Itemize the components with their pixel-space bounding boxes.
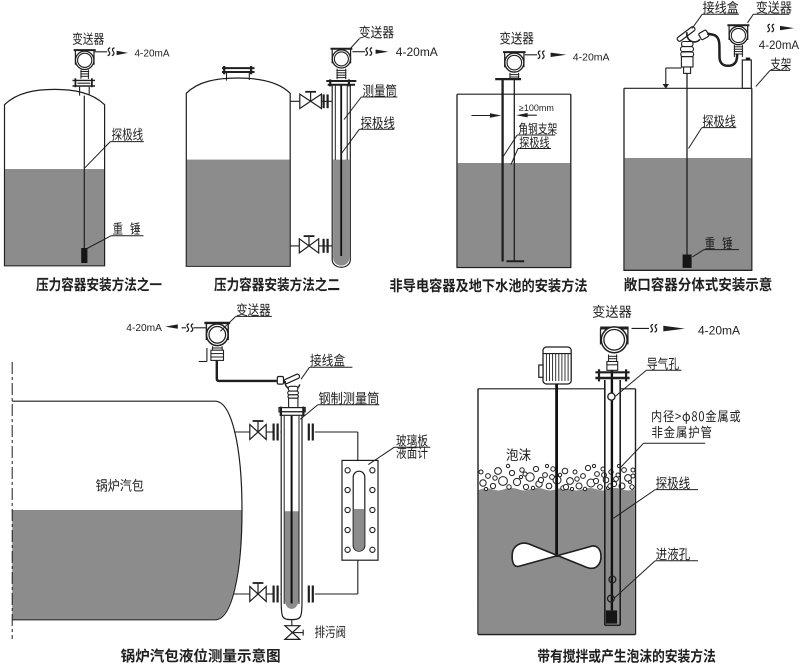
svg-text:4-20mA: 4-20mA [126, 323, 162, 334]
svg-text:4-20mA: 4-20mA [573, 51, 610, 63]
svg-text:4-20mA: 4-20mA [396, 45, 438, 59]
svg-text:≥100mm: ≥100mm [519, 103, 554, 113]
svg-text:4-20mA: 4-20mA [135, 48, 170, 59]
svg-text:4-20mA: 4-20mA [759, 40, 800, 52]
svg-text:4-20mA: 4-20mA [698, 324, 740, 338]
